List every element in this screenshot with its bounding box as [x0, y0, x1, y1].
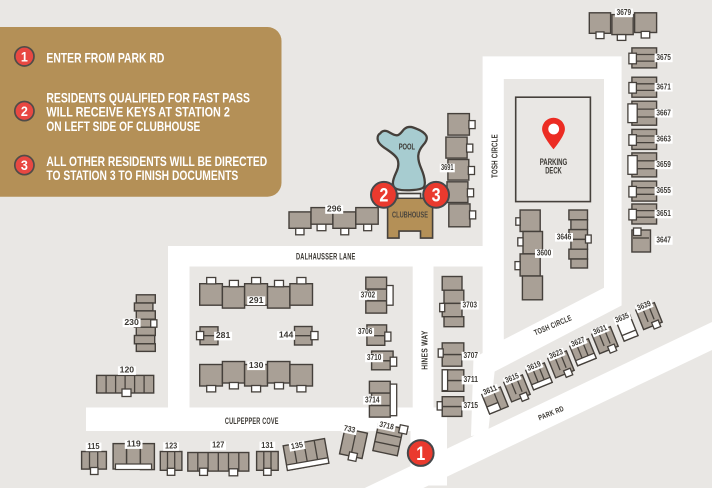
svg-text:281: 281	[216, 331, 231, 340]
svg-text:115: 115	[87, 442, 100, 451]
svg-text:3667: 3667	[656, 108, 671, 117]
svg-text:3647: 3647	[656, 236, 671, 245]
svg-text:2: 2	[21, 103, 28, 119]
svg-text:DECK: DECK	[545, 166, 562, 176]
svg-text:CULPEPPER COVE: CULPEPPER COVE	[225, 416, 279, 426]
svg-text:3706: 3706	[358, 327, 373, 336]
svg-text:HINES WAY: HINES WAY	[420, 330, 430, 370]
svg-text:123: 123	[165, 442, 178, 451]
svg-text:3663: 3663	[656, 135, 671, 144]
svg-text:TOSH CIRCLE: TOSH CIRCLE	[491, 134, 500, 178]
svg-text:ENTER FROM PARK RD: ENTER FROM PARK RD	[46, 49, 164, 65]
svg-text:3691: 3691	[441, 163, 454, 172]
svg-text:3659: 3659	[656, 160, 671, 169]
svg-text:131: 131	[261, 441, 274, 450]
svg-text:1: 1	[416, 443, 425, 465]
svg-text:296: 296	[327, 205, 342, 214]
svg-text:3655: 3655	[656, 186, 671, 195]
svg-text:144: 144	[279, 331, 294, 340]
svg-text:120: 120	[120, 366, 135, 375]
svg-text:1: 1	[21, 48, 28, 64]
svg-text:119: 119	[127, 440, 142, 449]
svg-text:2: 2	[379, 185, 388, 207]
svg-text:3710: 3710	[367, 353, 382, 362]
svg-text:130: 130	[249, 361, 264, 370]
svg-text:3600: 3600	[537, 249, 552, 258]
svg-text:ON LEFT SIDE OF CLUBHOUSE: ON LEFT SIDE OF CLUBHOUSE	[46, 118, 200, 134]
svg-text:3651: 3651	[656, 209, 671, 218]
svg-text:3711: 3711	[463, 375, 478, 384]
svg-text:3679: 3679	[617, 8, 632, 17]
svg-text:DALHAUSSER LANE: DALHAUSSER LANE	[296, 252, 356, 262]
svg-text:127: 127	[212, 441, 225, 450]
svg-text:3703: 3703	[462, 300, 477, 309]
svg-text:3702: 3702	[361, 291, 376, 300]
svg-text:291: 291	[249, 296, 264, 305]
svg-text:TO STATION 3 TO FINISH DOCUMEN: TO STATION 3 TO FINISH DOCUMENTS	[46, 167, 238, 183]
svg-text:3715: 3715	[463, 401, 478, 410]
svg-text:3: 3	[21, 157, 28, 173]
svg-text:3707: 3707	[463, 351, 478, 360]
svg-text:230: 230	[124, 318, 139, 327]
svg-text:3671: 3671	[656, 82, 671, 91]
svg-text:3646: 3646	[557, 232, 572, 241]
svg-text:POOL: POOL	[399, 141, 415, 151]
svg-text:3714: 3714	[365, 395, 380, 404]
svg-text:CLUBHOUSE: CLUBHOUSE	[392, 209, 428, 219]
svg-text:3675: 3675	[656, 53, 671, 62]
svg-text:3: 3	[432, 185, 441, 207]
